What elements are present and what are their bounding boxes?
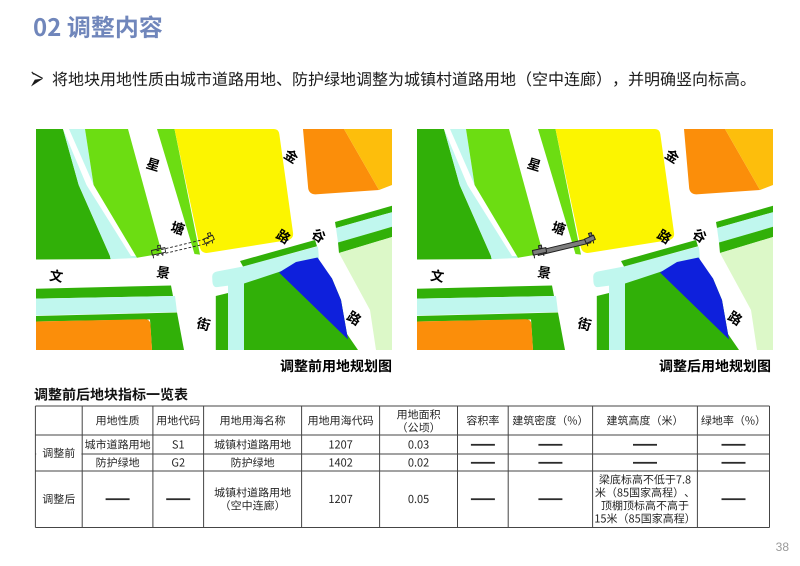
svg-text:38: 38 (776, 540, 790, 554)
